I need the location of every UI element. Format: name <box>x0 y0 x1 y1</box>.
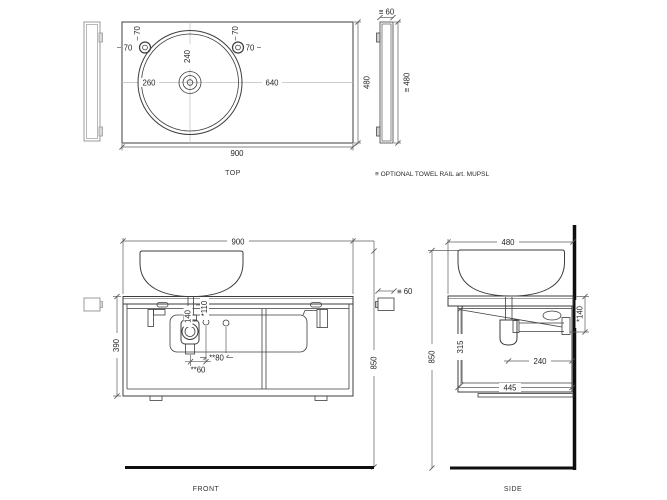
siphon-side <box>500 297 570 345</box>
rail-mount-tab <box>99 127 103 136</box>
dimensions-top: 70 70 70 70 240 260 640 900 <box>117 19 372 158</box>
dim-trap-depth: 140 <box>184 309 193 323</box>
dim-outlet-depth: *110 <box>200 300 209 316</box>
dim-faucet-left-top: 70 <box>133 26 142 35</box>
bracket-left <box>148 310 154 327</box>
rail-end-front-left <box>84 298 103 311</box>
dim-basin-from-left: 260 <box>142 78 156 87</box>
dimensions-side: 480 850 315 240 445 <box>427 237 589 471</box>
foot-right <box>315 396 327 401</box>
dim-faucet-left-side: 70 <box>124 43 133 52</box>
dim-outlet-drop: *140 <box>576 305 585 322</box>
towel-rail-footnote: ≡ OPTIONAL TOWEL RAIL art. MUPSL <box>375 171 489 178</box>
handle-slot-side <box>543 311 561 320</box>
bracket-right <box>317 310 328 328</box>
cabinet-front <box>123 303 353 401</box>
dim-trap-to-wall: 240 <box>533 357 547 366</box>
technical-drawing: 70 70 70 70 240 260 640 900 <box>0 0 667 500</box>
dim-basin-from-right: 640 <box>265 78 279 87</box>
wall-outlet-hole-2 <box>223 320 229 326</box>
dim-basin-from-top: 240 <box>183 49 192 63</box>
faucet-hole-left <box>140 42 151 53</box>
faucet-hole-right <box>233 42 244 53</box>
dim-front-overall-height: 850 <box>370 356 379 370</box>
front-view-label: FRONT <box>193 486 220 493</box>
top-view-label: TOP <box>225 170 241 177</box>
dim-side-overall-height: 850 <box>428 350 437 364</box>
dim-rail-front-thickness: ≡ 60 <box>397 287 413 296</box>
dim-outlet-spacing: **80 <box>209 353 224 362</box>
dim-faucet-right-top: 70 <box>231 26 240 35</box>
countertop-side <box>448 296 573 306</box>
handle-slot-left <box>157 303 168 308</box>
open-recess <box>148 310 328 353</box>
rail-end-front-right: ≡ 60 <box>375 287 413 311</box>
dim-internal-height: 315 <box>456 340 465 354</box>
towel-rail-side-view: ≡ 60 ≡ 480 ≡ OPTIONAL TOWEL RAIL art. MU… <box>375 8 489 179</box>
dim-front-width: 900 <box>231 238 245 247</box>
rail-mount-tab <box>99 33 103 42</box>
rail-mount-tab <box>377 127 381 136</box>
dimensions-front: 900 850 390 140 *110 ** <box>112 236 380 470</box>
towel-rail-top-left <box>84 22 103 141</box>
dim-cabinet-height: 390 <box>112 338 121 352</box>
dim-rail-length: ≡ 480 <box>403 72 412 92</box>
spec-sheet: 70 70 70 70 240 260 640 900 <box>0 0 667 500</box>
lower-trim <box>478 394 573 398</box>
wall-flange <box>562 318 570 335</box>
side-view-label: SIDE <box>504 486 522 493</box>
dim-faucet-right-side: 70 <box>246 43 255 52</box>
dim-top-width: 900 <box>230 149 244 158</box>
pipe-nut <box>513 321 519 333</box>
basin-side <box>458 250 565 296</box>
dim-rail-thickness: ≡ 60 <box>379 8 395 17</box>
rail-mount-tab <box>377 33 381 42</box>
front-view: 900 850 390 140 *110 ** <box>84 236 413 493</box>
dim-side-depth: 480 <box>501 238 515 247</box>
dim-top-depth: 480 <box>363 75 372 89</box>
foot-left <box>150 396 162 401</box>
dim-cabinet-depth: 445 <box>503 383 517 392</box>
trap-outlet <box>186 344 195 354</box>
top-view: 70 70 70 70 240 260 640 900 <box>84 19 372 177</box>
side-view: 480 850 315 240 445 <box>427 225 589 493</box>
basin-front <box>140 251 243 297</box>
handle-slot-right <box>311 303 322 308</box>
dim-trap-offset: **60 <box>191 366 206 375</box>
